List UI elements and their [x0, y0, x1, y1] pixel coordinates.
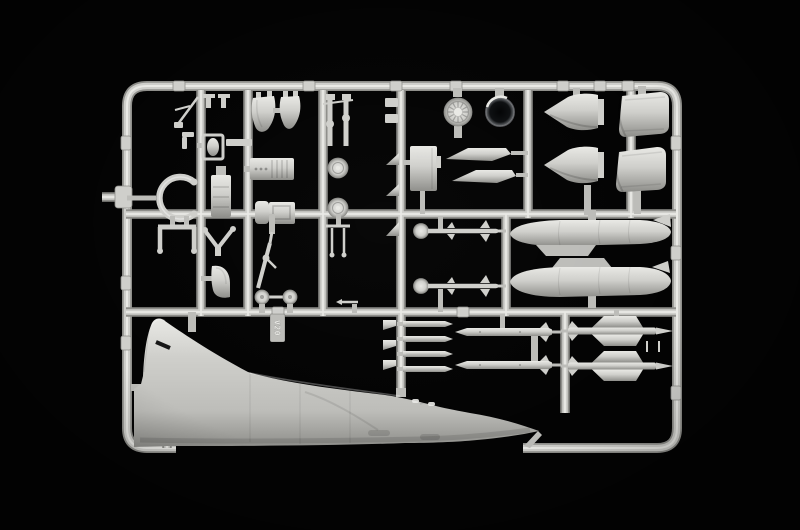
seat-frame-part — [211, 166, 231, 217]
sprue-tag-text: V20 — [273, 320, 282, 336]
small-tab-parts — [203, 94, 230, 108]
small-fin-parts — [383, 320, 396, 370]
main-wheel-part — [328, 158, 348, 178]
sprue-id-tag: V20 — [270, 314, 285, 342]
missile-body-part — [455, 314, 561, 342]
magic-missile-part — [414, 216, 507, 242]
hinge-pin-parts — [326, 214, 350, 258]
sprue-photo: V20 — [0, 0, 800, 530]
air-intake-half-part — [252, 91, 276, 132]
exhaust-nozzle-half-part — [616, 147, 666, 214]
magic-missile-part — [414, 275, 507, 312]
nose-cone-half-part — [544, 147, 604, 215]
ventral-fin-part — [452, 170, 528, 183]
cockpit-tub-part — [244, 158, 294, 180]
finned-missile-part — [561, 341, 673, 381]
nose-cone-half-part — [544, 88, 604, 130]
spoked-wheel-hub-part — [444, 88, 472, 138]
air-intake-half-part — [273, 91, 300, 129]
small-bracket-part — [182, 132, 194, 149]
gear-door-part — [403, 146, 441, 214]
nose-gear-leg-part — [255, 214, 297, 313]
intake-ring-part — [486, 88, 515, 127]
instrument-coaming-part — [226, 139, 252, 146]
pitot-probe-part — [174, 97, 198, 128]
ventral-fin-part — [446, 148, 528, 161]
sprue-scene: V20 — [0, 0, 800, 530]
drop-tank-part — [510, 258, 671, 308]
missile-body-part — [455, 336, 561, 375]
yoke-fork-part — [202, 226, 236, 256]
